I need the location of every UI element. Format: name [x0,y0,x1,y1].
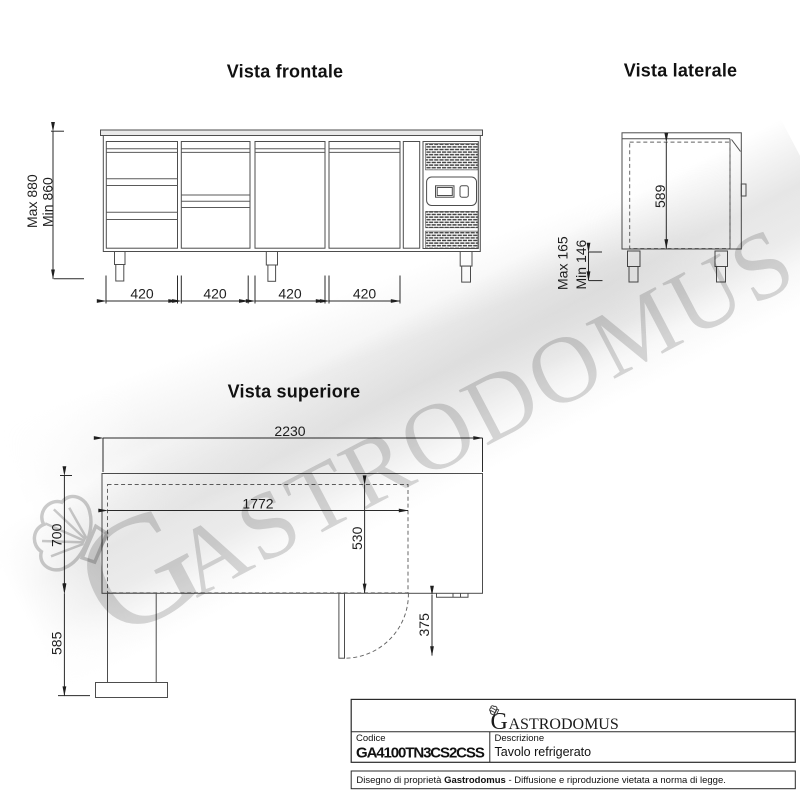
svg-text:GASTRODOMUS: GASTRODOMUS [49,158,800,672]
